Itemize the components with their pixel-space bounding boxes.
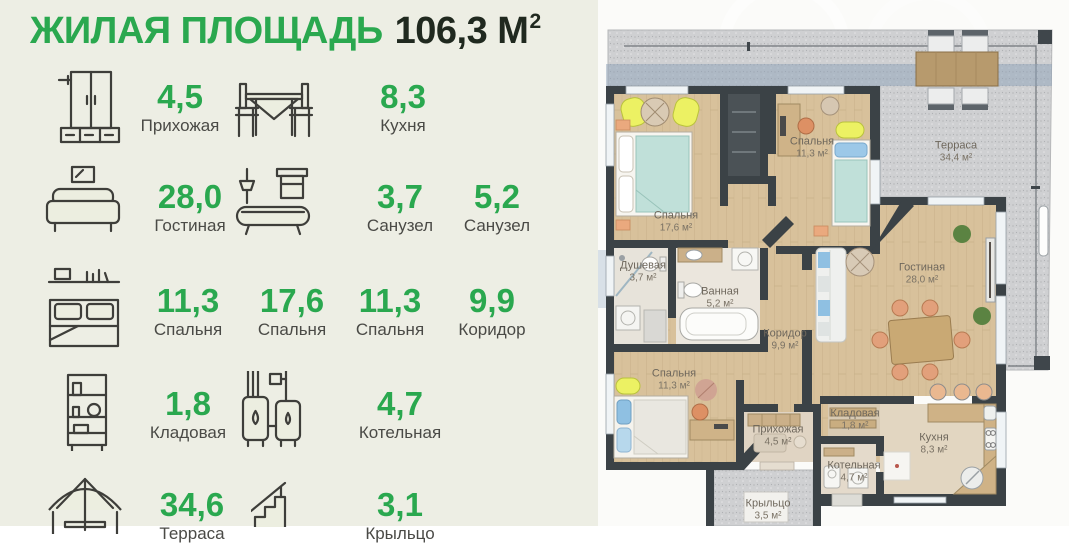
room-label-bedroom-176: Спальня17,6 м² [654, 209, 698, 234]
stat-bathroom-1: 3,7Санузел [367, 180, 433, 236]
stat-bedroom-3: 11,3Спальня [356, 284, 424, 340]
stairs-icon [251, 479, 295, 527]
shelf-icon [66, 373, 108, 451]
room-label-porch: Крыльцо3,5 м² [746, 497, 791, 522]
title-total: 106,3 М2 [395, 10, 541, 52]
boiler-icon [238, 371, 306, 449]
kitchen-table-icon [234, 82, 314, 138]
stat-boiler-room: 4,7Котельная [359, 387, 441, 443]
room-label-shower: Душевая3,7 м² [620, 259, 666, 284]
room-label-storage: Кладовая1,8 м² [830, 407, 879, 432]
stat-bathroom-2: 5,2Санузел [464, 180, 530, 236]
room-label-hallway: Прихожая4,5 м² [753, 423, 804, 448]
bathtub-icon [235, 167, 311, 237]
stat-bedroom-2: 17,6Спальня [258, 284, 326, 340]
floor-plan-drawing [598, 0, 1069, 526]
umbrella-icon [45, 476, 125, 534]
stat-kitchen: 8,3Кухня [380, 80, 426, 136]
stat-porch: 3,1Крыльцо [365, 488, 434, 544]
stat-living-room: 28,0Гостиная [154, 180, 225, 236]
room-label-bath: Ванная5,2 м² [701, 285, 739, 310]
stat-hallway: 4,5Прихожая [141, 80, 220, 136]
bed-icon [47, 266, 121, 352]
floor-plan-infographic: ЖИЛАЯ ПЛОЩАДЬ106,3 М2 [0, 0, 1069, 526]
room-label-bedroom-113-bottom: Спальня11,3 м² [652, 367, 696, 392]
wardrobe-icon [57, 70, 123, 144]
stat-storage: 1,8Кладовая [150, 387, 226, 443]
stat-bedroom-1: 11,3Спальня [154, 284, 222, 340]
page-title: ЖИЛАЯ ПЛОЩАДЬ106,3 М2 [30, 10, 541, 53]
stat-terrace: 34,6Терраса [159, 488, 224, 544]
stat-corridor: 9,9Коридор [458, 284, 525, 340]
legend-panel: ЖИЛАЯ ПЛОЩАДЬ106,3 М2 [0, 0, 598, 526]
room-label-living-room: Гостиная28,0 м² [899, 261, 945, 286]
sofa-icon [45, 165, 121, 237]
room-label-boiler-room: Котельная4,7 м² [827, 459, 880, 484]
room-label-terrace: Терраса34,4 м² [935, 139, 977, 164]
title-living-area: ЖИЛАЯ ПЛОЩАДЬ [30, 10, 383, 52]
room-label-corridor: Коридор9,9 м² [763, 327, 806, 352]
room-label-bedroom-113-top: Спальня11,3 м² [790, 135, 834, 160]
floor-plan-panel: Спальня17,6 м² Спальня11,3 м² Терраса34,… [598, 0, 1069, 526]
room-label-kitchen: Кухня8,3 м² [919, 431, 948, 456]
